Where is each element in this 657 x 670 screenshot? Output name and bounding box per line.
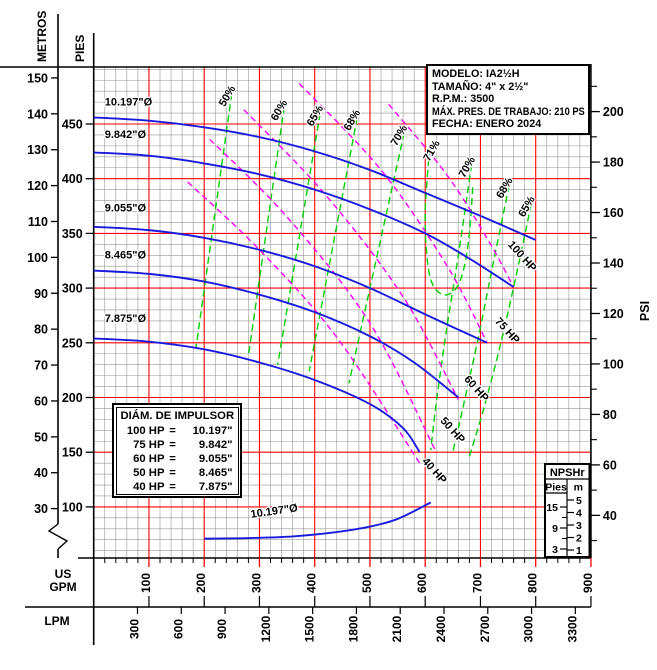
svg-text:3: 3	[552, 544, 558, 556]
svg-text:8.465"Ø: 8.465"Ø	[105, 250, 147, 262]
svg-text:5: 5	[576, 495, 582, 507]
svg-text:800: 800	[526, 573, 540, 593]
impeller-diameter-legend: DIÁM. DE IMPULSOR 100 HP=10.197"75 HP=9.…	[112, 403, 242, 498]
svg-text:40: 40	[34, 466, 48, 480]
svg-text:60: 60	[603, 458, 617, 472]
svg-text:3: 3	[576, 520, 582, 532]
svg-text:80: 80	[603, 408, 617, 422]
svg-text:US: US	[55, 567, 72, 581]
legend-row: 100 HP=10.197"	[121, 424, 234, 438]
svg-text:30: 30	[34, 502, 48, 516]
svg-text:70: 70	[34, 359, 48, 373]
svg-text:100: 100	[62, 500, 83, 514]
legend-title: DIÁM. DE IMPULSOR	[121, 409, 234, 424]
model-line: MODELO: IA2½H	[432, 68, 588, 81]
svg-text:3300: 3300	[565, 615, 579, 642]
date-line: FECHA: ENERO 2024	[432, 118, 588, 131]
max-pressure-line: MÁX. PRES. DE TRABAJO: 210 PS	[432, 106, 585, 119]
svg-text:71%: 71%	[421, 138, 443, 163]
svg-text:4: 4	[576, 508, 582, 520]
efficiency-line-1	[248, 106, 284, 355]
svg-text:PIES: PIES	[73, 35, 87, 62]
rpm-line: R.P.M.: 3500	[432, 93, 588, 106]
svg-text:75 HP: 75 HP	[492, 316, 521, 347]
svg-text:300: 300	[249, 573, 263, 593]
svg-text:110: 110	[28, 215, 48, 229]
svg-text:700: 700	[470, 573, 484, 593]
svg-text:130: 130	[27, 143, 48, 157]
svg-text:PSI: PSI	[638, 301, 652, 321]
npshr-box: NPSHrPiesm543211593	[545, 464, 590, 557]
legend-rows: 100 HP=10.197"75 HP=9.842"60 HP=9.055"50…	[121, 424, 234, 495]
svg-text:70%: 70%	[457, 155, 479, 180]
svg-text:900: 900	[581, 573, 595, 593]
gpm-axis: 100200300400500600700800900USGPM	[49, 558, 595, 607]
svg-text:300: 300	[127, 619, 141, 639]
svg-text:NPSHr: NPSHr	[550, 467, 586, 479]
svg-text:100: 100	[139, 573, 153, 593]
svg-text:60 HP: 60 HP	[461, 374, 490, 405]
svg-text:40: 40	[603, 509, 617, 523]
efficiency-line-4	[349, 133, 404, 384]
svg-text:7.875"Ø: 7.875"Ø	[105, 313, 147, 325]
svg-text:400: 400	[62, 172, 83, 186]
svg-text:60: 60	[34, 394, 48, 408]
svg-text:2: 2	[576, 533, 582, 545]
efficiency-line-6	[431, 164, 472, 450]
svg-text:50: 50	[34, 430, 48, 444]
legend-row: 40 HP=7.875"	[121, 480, 234, 494]
psi-axis: 200180160140120100806040PSI	[591, 86, 652, 540]
model-info-box: MODELO: IA2½H TAMAÑO: 4" x 2½" R.P.M.: 3…	[426, 64, 590, 135]
svg-text:600: 600	[415, 573, 429, 593]
pump-curve-page: 1501401301201101009080706050403045040035…	[0, 0, 657, 670]
svg-text:1500: 1500	[303, 615, 317, 642]
head-curve-50-HP	[94, 271, 459, 398]
svg-text:200: 200	[194, 573, 208, 593]
svg-text:180: 180	[603, 156, 624, 170]
svg-text:1200: 1200	[259, 615, 273, 642]
svg-text:900: 900	[215, 619, 229, 639]
svg-text:2700: 2700	[478, 615, 492, 642]
svg-text:Pies: Pies	[545, 482, 567, 494]
svg-text:150: 150	[27, 71, 48, 85]
svg-text:200: 200	[62, 391, 83, 405]
svg-text:m: m	[574, 482, 583, 494]
legend-row: 75 HP=9.842"	[121, 438, 234, 452]
svg-text:GPM: GPM	[49, 580, 76, 594]
svg-text:3000: 3000	[522, 615, 536, 642]
svg-text:15: 15	[546, 502, 558, 514]
svg-text:9.055"Ø: 9.055"Ø	[105, 203, 147, 215]
svg-text:40 HP: 40 HP	[419, 456, 448, 487]
size-line: TAMAÑO: 4" x 2½"	[432, 81, 588, 94]
svg-text:1: 1	[576, 545, 582, 557]
legend-row: 60 HP=9.055"	[121, 452, 234, 466]
lpm-axis: 3006009001200150018002100240027003000330…	[44, 607, 579, 642]
svg-text:50%: 50%	[217, 84, 239, 109]
svg-text:METROS: METROS	[35, 11, 49, 62]
svg-text:120: 120	[27, 179, 48, 193]
svg-text:250: 250	[62, 336, 83, 350]
svg-text:2100: 2100	[390, 615, 404, 642]
svg-text:400: 400	[305, 573, 319, 593]
svg-text:140: 140	[27, 107, 48, 121]
svg-text:120: 120	[603, 307, 624, 321]
svg-text:65%: 65%	[516, 194, 538, 219]
left-axis: 1501401301201101009080706050403045040035…	[27, 11, 94, 516]
svg-text:140: 140	[603, 257, 624, 271]
svg-text:LPM: LPM	[44, 614, 69, 628]
svg-text:100: 100	[27, 251, 48, 265]
svg-text:1800: 1800	[346, 615, 360, 642]
legend-row: 50 HP=8.465"	[121, 466, 234, 480]
svg-text:90: 90	[34, 287, 48, 301]
svg-text:100: 100	[603, 357, 624, 371]
svg-text:2400: 2400	[434, 615, 448, 642]
svg-text:350: 350	[62, 227, 83, 241]
svg-text:9: 9	[552, 523, 558, 535]
svg-text:80: 80	[34, 323, 48, 337]
svg-text:500: 500	[360, 573, 374, 593]
svg-text:300: 300	[62, 282, 83, 296]
svg-text:9.842"Ø: 9.842"Ø	[105, 129, 147, 141]
svg-text:68%: 68%	[342, 108, 364, 133]
svg-text:450: 450	[62, 118, 83, 132]
svg-text:10.197"Ø: 10.197"Ø	[105, 96, 153, 108]
npsh-curve	[204, 503, 431, 539]
svg-text:160: 160	[603, 206, 624, 220]
svg-text:60%: 60%	[269, 98, 291, 123]
svg-text:600: 600	[171, 619, 185, 639]
svg-text:200: 200	[603, 105, 624, 119]
svg-text:150: 150	[62, 446, 83, 460]
